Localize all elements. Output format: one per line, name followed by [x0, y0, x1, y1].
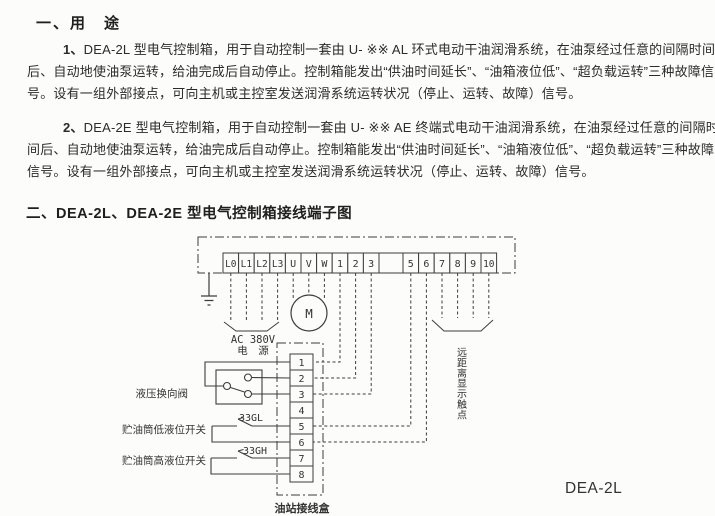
junction-terminal-label: 4 [298, 406, 304, 417]
high-switch-tag: 33GH [243, 446, 267, 457]
junction-terminal-label: 6 [298, 438, 304, 449]
junction-terminal-strip: 12345678 [290, 354, 313, 482]
ground-icon [201, 273, 217, 305]
terminal-cell-label: U [290, 259, 296, 270]
terminal-cell-label: L0 [225, 259, 237, 270]
terminal-cell-label: 7 [439, 259, 445, 270]
junction-terminal-label: 5 [298, 422, 304, 433]
junction-terminal-label: 2 [298, 374, 304, 385]
valve-label: 液压换向阀 [136, 387, 189, 400]
junction-terminal-label: 3 [298, 390, 304, 401]
remote-contacts-label-char: 点 [457, 409, 467, 421]
ac-power-label-line2: 电 源 [237, 344, 269, 357]
motor-label: M [305, 306, 313, 321]
document-page: 一、用 途 1、DEA-2L 型电气控制箱，用于自动控制一套由 U- ※※ AL… [0, 0, 715, 516]
terminal-cell-label: 9 [470, 259, 476, 270]
remote-contacts-brace [432, 320, 493, 331]
terminal-cell-label: V [306, 259, 312, 270]
valve-switch-arm [231, 388, 245, 393]
valve-box [216, 370, 262, 404]
terminal-cell-label: 8 [455, 259, 461, 270]
junction-terminal-label: 8 [298, 470, 304, 481]
terminal-drop-wires [231, 273, 489, 442]
high-switch-wire-to-8 [211, 458, 290, 474]
junction-box-label: 油站接线盒 [275, 501, 331, 515]
valve-wire-terminal-2 [252, 378, 291, 379]
remote-contacts-label-char: 距 [457, 357, 467, 369]
wiring-diagram: L0L1L2L3UVW1235678910 AC 380V 电 源 M 远距离显… [0, 0, 715, 516]
terminal-cell [379, 253, 403, 273]
drop-wire [313, 273, 411, 426]
terminal-cell-label: W [321, 259, 328, 270]
remote-contacts-label-char: 离 [457, 367, 467, 380]
remote-contacts-label-char: 远 [457, 347, 467, 359]
remote-contacts-label-char: 示 [457, 390, 467, 401]
high-switch-label: 贮油筒高液位开关 [122, 454, 206, 467]
model-label: DEA-2L [565, 480, 622, 497]
terminal-cell-label: 3 [368, 259, 374, 270]
junction-terminal-label: 7 [298, 454, 304, 465]
terminal-cell-label: L3 [272, 259, 283, 270]
drop-wire [313, 273, 371, 394]
low-switch-wire-to-6 [212, 426, 290, 442]
junction-terminal-label: 1 [298, 358, 304, 369]
terminal-cell-label: 6 [423, 259, 429, 270]
valve-upper-contact [245, 374, 252, 381]
valve-common-contact [224, 383, 231, 390]
remote-contacts-label-char: 显 [457, 378, 467, 390]
terminal-cell-label: 1 [337, 259, 343, 270]
low-switch-label: 贮油筒低液位开关 [122, 423, 206, 436]
terminal-cell-label: 2 [353, 259, 359, 270]
drop-wire [313, 273, 426, 442]
terminal-cell-label: L1 [241, 259, 253, 270]
remote-contacts-label: 远距离显示触点 [457, 347, 467, 421]
terminal-cell-label: 10 [483, 259, 495, 270]
ac-power-brace [224, 322, 279, 331]
terminal-cell-label: 5 [408, 259, 414, 270]
terminal-cell-label: L2 [256, 259, 267, 270]
remote-contacts-label-char: 触 [457, 398, 467, 411]
low-switch-tag: 33GL [239, 413, 263, 424]
valve-lower-contact [245, 391, 252, 398]
terminal-strip: L0L1L2L3UVW1235678910 [223, 253, 497, 273]
